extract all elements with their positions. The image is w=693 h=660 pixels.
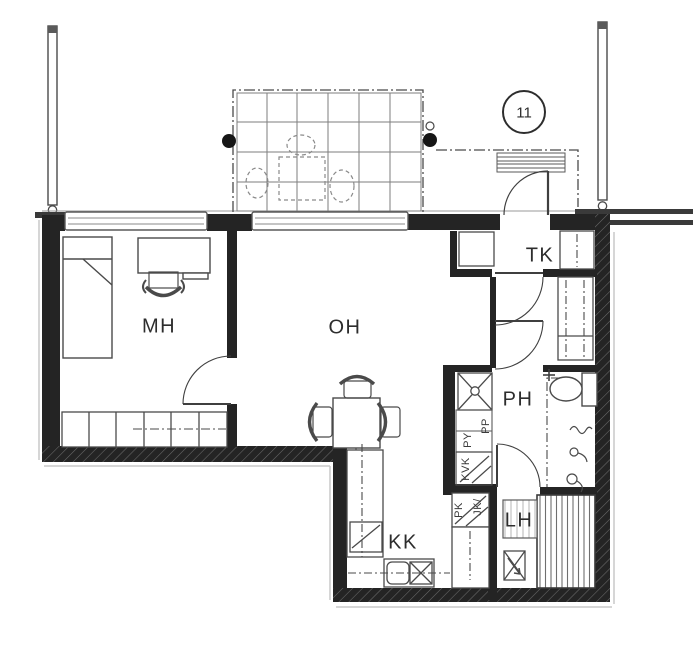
room-label-vestibule: TK	[526, 245, 555, 268]
laundry-sink	[458, 373, 492, 410]
unit-number-label: 11	[516, 105, 532, 122]
hall-wardrobes	[558, 277, 593, 360]
balcony-divider-right	[598, 22, 607, 210]
kitchen-counter-left	[347, 444, 383, 557]
entrance-grating	[497, 153, 565, 172]
sauna-stove	[504, 551, 525, 580]
appliance-label-jk: JK/	[472, 498, 484, 515]
structural-columns	[222, 122, 437, 148]
appliance-label-pp: PP	[480, 418, 492, 434]
window-living-room	[252, 212, 408, 230]
vestibule-door	[495, 273, 543, 325]
room-label-bedroom: MH	[142, 316, 176, 339]
kitchen-tall-counter	[452, 527, 489, 588]
room-label-bathroom: PH	[503, 389, 534, 412]
sauna-door	[497, 444, 540, 487]
appliance-label-kvk: KVK	[460, 457, 472, 481]
room-label-sauna: LH	[505, 510, 534, 533]
desk-chair	[143, 272, 184, 296]
floor-plan: 11 MH OH TK PH KK LH PP PY KVK JK/ PK	[0, 0, 693, 660]
bedroom-wardrobes	[62, 412, 227, 447]
entrance-door	[504, 171, 548, 215]
room-label-kitchenette: KK	[388, 532, 418, 555]
bed	[63, 237, 112, 358]
window-bedroom	[65, 212, 207, 230]
bedroom-door	[183, 356, 231, 404]
shower-fittings	[567, 427, 592, 493]
appliance-label-pk: PK	[453, 502, 465, 518]
kitchen-sink-stove	[348, 559, 450, 587]
balcony-divider-left	[48, 26, 57, 214]
bathroom-door	[495, 321, 543, 369]
appliance-label-py: PY	[462, 432, 474, 448]
balcony-tile-grid	[237, 93, 421, 211]
balcony-furniture	[246, 135, 354, 202]
room-label-living-room: OH	[329, 317, 362, 340]
